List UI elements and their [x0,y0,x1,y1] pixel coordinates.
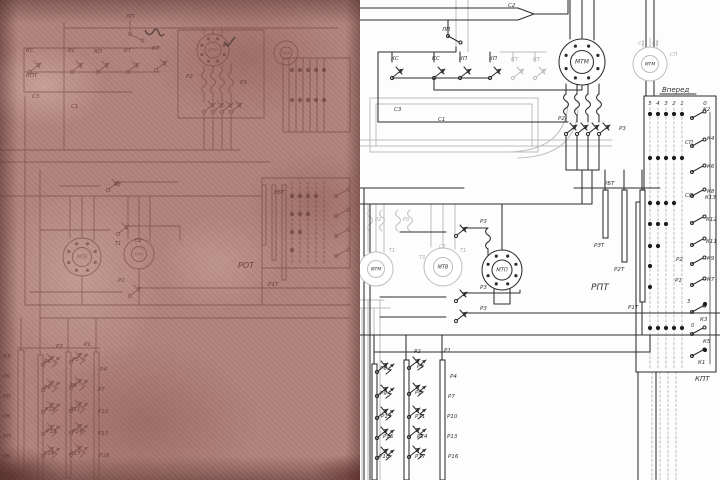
schematic-label: КП [489,56,497,62]
controller-dot [298,194,302,198]
controller-dot [322,68,326,72]
controller-position-digit: 3 [664,101,668,107]
controller-dot [648,222,652,226]
controller-dot [656,244,660,248]
controller-dot [306,68,310,72]
schematic-label: КС [391,56,399,62]
controller-position-digit: 5 [648,101,652,107]
schematic-label: С1 [71,104,78,110]
left-schematic-svg: МТММТММТВМТП ЛПКСКСКПКТКТКПТС3С1Р2Р3Т1С2… [0,0,360,480]
schematic-label: РБ [3,374,10,380]
controller-dot [322,98,326,102]
controller-dot [672,326,676,330]
schematic-label: К7 [707,277,715,283]
controller-dot [306,194,310,198]
controller-position-dots [648,112,707,352]
controller-dot [648,112,652,116]
controller-dot [298,98,302,102]
motor-symbol: МТМ [274,41,298,65]
schematic-label: Р3 [403,217,409,223]
left-labels: ЛПКСКСКПКТКТКПТС3С1Р2Р3Т1С2РОТР1ТРБТР3Р1… [3,14,285,478]
schematic-label: Р3 [480,306,487,312]
schematic-label: Р3 [619,126,626,132]
schematic-label: К12 [706,217,717,223]
schematic-label: Р1 [84,342,91,348]
controller-dot [314,68,318,72]
schematic-label: К4 [707,136,715,142]
schematic-label: Р1 [675,278,682,284]
schematic-label: К6 [707,164,715,170]
schematic-label: КС [68,48,76,54]
controller-dot [664,156,668,160]
controller-dot [672,156,676,160]
controller-dot [648,264,652,268]
clean-redrawn-schematic: МТММТММТММТВМТП С2ЛПКСКСКПКПКТКТС3С1С1С2… [360,0,720,480]
schematic-label: С2 [508,3,516,9]
schematic-label: КТ [124,48,132,54]
schematic-label: С1 [438,117,445,123]
schematic-label: РОТ [238,261,255,270]
motor-label: МТП [496,268,508,274]
schematic-label: Р13 [447,434,458,440]
controller-dot [314,194,318,198]
schematic-label: Р2 [375,217,381,223]
controller-dot [298,212,302,216]
schematic-label: Р11 [415,414,425,420]
motor-label: МТМ [282,52,290,56]
aged-original-schematic: МТММТММТВМТП ЛПКСКСКПКТКТКПТС3С1Р2Р3Т1С2… [0,0,360,480]
schematic-label: Р10 [98,409,109,415]
schematic-label: Р3 [480,219,487,225]
controller-dot [680,112,684,116]
schematic-label: 0 [691,323,694,329]
controller-dot [290,212,294,216]
schematic-label: Р3 [480,285,487,291]
controller-dot [656,201,660,205]
schematic-label: РПТ [591,283,610,293]
schematic-label: Р3 [240,80,247,86]
schematic-label: Р15 [46,429,57,435]
controller-position-digit: 2 [672,101,676,107]
schematic-label: С3 [394,107,402,113]
controller-dot [290,248,294,252]
controller-dot [290,230,294,234]
controller-dot [648,201,652,205]
controller-dot [664,326,668,330]
schematic-label: Р15 [383,434,394,440]
controller-dot [656,326,660,330]
schematic-label: Р18 [379,454,390,460]
schematic-label: Р1Т [268,282,279,288]
schematic-label: К1 [698,360,705,366]
controller-dot [306,98,310,102]
controller-dot [664,112,668,116]
schematic-label: РН [3,394,10,400]
motor-label: МТМ [208,48,218,53]
controller-title: Вперед [662,86,689,94]
motor-symbol: МТМ [633,47,667,81]
right-wire-network [360,0,720,480]
controller-dot [656,222,660,226]
motor-symbol: МТМ [197,34,229,66]
motor-label: МТМ [575,59,589,66]
controller-dot [314,98,318,102]
schematic-label: Р5 [417,364,424,370]
schematic-label: Р6 [44,359,51,365]
schematic-label: Р16 [99,453,110,459]
schematic-label: Р9 [44,385,51,391]
schematic-label: Р4 [100,367,107,373]
controller-dot [656,156,660,160]
schematic-label: Т1 [460,248,466,254]
schematic-label: КС [26,48,34,54]
schematic-label: Р8 [415,390,422,396]
schematic-label: РБТ [604,181,615,187]
controller-position-digit: 1 [680,101,684,107]
schematic-label: С3 [32,94,40,100]
schematic-label: Р2 [56,344,63,350]
schematic-label: Р18 [44,451,55,457]
schematic-label: ЛП [441,27,450,33]
controller-dot [680,156,684,160]
schematic-label: К3 [700,317,708,323]
schematic-label: Р13 [98,431,109,437]
schematic-label: КТ [533,57,541,63]
controller-dot [703,302,707,306]
schematic-label: Т1 [115,241,121,247]
schematic-label: СП [685,193,693,199]
schematic-label: КПТ [26,73,38,79]
schematic-label: Т3 [419,255,425,261]
schematic-label: З [687,299,691,305]
schematic-label: Р11 [70,407,80,413]
controller-dot [672,112,676,116]
schematic-label: С2 [652,41,659,47]
schematic-label: КП [94,49,102,55]
schematic-label: Р5 [72,357,79,363]
schematic-label: КТ [511,57,519,63]
controller-dot [664,222,668,226]
schematic-label: КС [432,56,440,62]
controller-dot [290,98,294,102]
schematic-label: Р16 [448,454,459,460]
controller-dot [298,230,302,234]
motor-symbol: МТВ [424,248,462,286]
controller-dot [298,68,302,72]
motor-label: МТМ [371,267,381,273]
pencil-marks [145,29,235,46]
schematic-label: С2 [135,238,142,244]
schematic-label: Р8 [70,383,77,389]
schematic-label: Р2 [414,349,421,355]
schematic-label: Р6 [380,366,387,372]
schematic-label: СП [685,140,693,146]
schematic-label: КЗ [3,354,11,360]
schematic-label: Р2Т [614,267,625,273]
schematic-label: КПТ [695,375,710,383]
schematic-label: РВ [3,414,10,420]
controller-dot [648,326,652,330]
schematic-label: Р7 [448,394,455,400]
schematic-label: Р7 [98,387,105,393]
schematic-label: К13 [705,195,716,201]
schematic-label: Р12 [381,414,392,420]
schematic-label: Р2 [186,74,193,80]
motor-symbol: МТМ [559,39,605,85]
controller-position-digit: 0 [703,101,707,107]
controller-dot [680,326,684,330]
schematic-label: РБ [3,454,10,460]
controller-dot [648,156,652,160]
schematic-label: Р1 [118,278,125,284]
schematic-label: СП [670,52,677,58]
schematic-label: РП [3,434,10,440]
schematic-label: Р12 [45,407,56,413]
motor-label: МТВ [77,255,88,261]
motor-symbol: МТМ [360,252,393,286]
schematic-label: С2 [439,244,446,250]
schematic-label: Р2 [558,116,565,122]
schematic-label: Р17 [415,454,426,460]
schematic-label: КТ [152,46,160,52]
schematic-label: Р4 [450,374,457,380]
schematic-label: К5 [703,339,711,345]
controller-position-digit: 4 [656,101,660,107]
schematic-label: Р10 [447,414,458,420]
controller-dot [290,68,294,72]
schematic-label: РЗТ [594,243,605,249]
controller-dot [656,112,660,116]
right-schematic-svg: МТММТММТММТВМТП С2ЛПКСКСКПКПКТКТС3С1С1С2… [360,0,720,480]
schematic-label: Р17 [70,451,81,457]
schematic-label: КП [459,56,467,62]
schematic-label: Р2 [676,257,683,263]
schematic-label: ЛП [125,14,134,20]
schematic-label: Р1 [444,348,451,354]
schematic-label: К11 [706,239,717,245]
controller-dot [672,201,676,205]
schematic-label: Т1 [389,248,395,254]
schematic-label: Р3 [114,182,121,188]
motor-symbol: МТП [482,250,522,290]
controller-dot [648,244,652,248]
schematic-label: С1 [638,41,645,47]
schematic-label: РВ [3,472,10,478]
motor-label: МТМ [645,62,655,68]
schematic-label: Р14 [72,429,83,435]
schematic-label: К9 [707,256,715,262]
controller-dot [306,212,310,216]
controller-dot [290,194,294,198]
motor-symbol: МТВ [63,238,101,276]
schematic-photo: МТММТММТВМТП ЛПКСКСКПКТКТКПТС3С1Р2Р3Т1С2… [0,0,720,480]
controller-dot [703,348,707,352]
schematic-label: РБТ [274,190,285,196]
schematic-label: Р14 [417,434,428,440]
controller-dot [664,201,668,205]
motor-label: МТВ [438,265,449,271]
schematic-label: Р1Т [628,305,639,311]
motor-label: МТП [135,252,144,257]
schematic-label: Р9 [380,391,387,397]
controller-dot [648,285,652,289]
schematic-label: К2 [703,107,711,113]
